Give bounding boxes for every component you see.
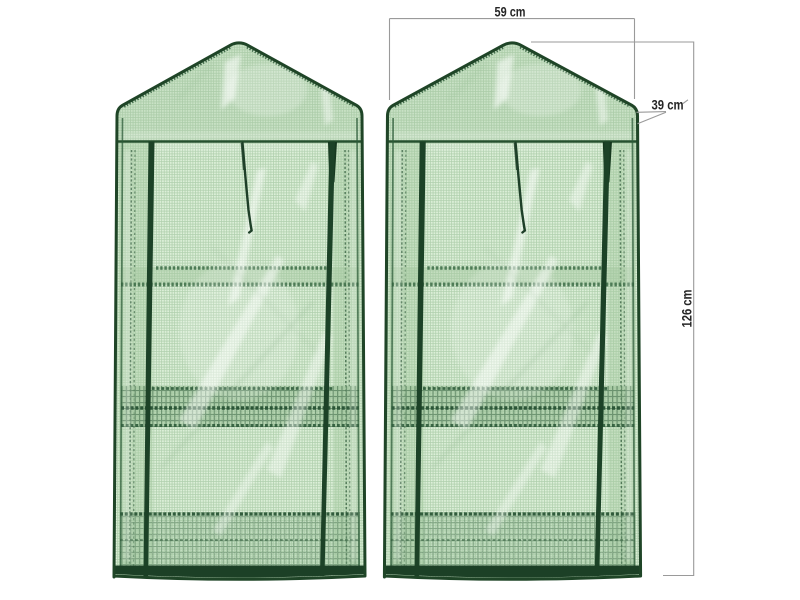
svg-text:126 cm: 126 cm (680, 290, 695, 328)
svg-text:59 cm: 59 cm (495, 4, 526, 19)
svg-text:39 cm: 39 cm (652, 98, 684, 113)
